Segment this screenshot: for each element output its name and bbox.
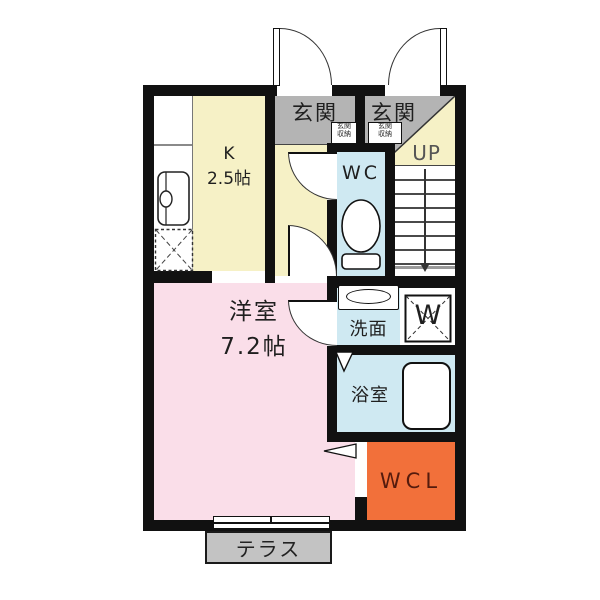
entrance-storage-right: 玄関 収納 bbox=[368, 122, 402, 144]
wall-closet-left-lower bbox=[355, 497, 367, 520]
entrance-storage-left-line2: 収納 bbox=[337, 130, 351, 138]
entrance-left-door-leaf bbox=[273, 28, 280, 86]
washbasin-counter bbox=[338, 285, 399, 310]
wc-label: WC bbox=[337, 162, 385, 184]
washer-box: W bbox=[404, 294, 452, 343]
washroom-label: 洗面 bbox=[337, 315, 400, 341]
wall-kitchen-bottom bbox=[154, 271, 212, 283]
entrance-right-opening bbox=[385, 85, 440, 96]
toilet-icon bbox=[339, 198, 383, 272]
kitchen-room: K 2.5帖 bbox=[193, 96, 265, 271]
kitchen-label-line2: 2.5帖 bbox=[207, 169, 251, 189]
counter-divider-line bbox=[154, 144, 193, 146]
kitchen-label-line1: K bbox=[223, 144, 234, 164]
closet-door-icon bbox=[322, 442, 358, 460]
entrance-right-door-arc bbox=[388, 28, 440, 85]
wall-outer-left bbox=[143, 85, 154, 531]
bathtub bbox=[402, 362, 451, 430]
wall-washroom-left-upper bbox=[327, 288, 337, 300]
bathroom-door-icon bbox=[334, 350, 356, 374]
western-room-label-line1: 洋室 bbox=[229, 299, 279, 325]
walk-in-closet-label: WCL bbox=[380, 469, 442, 493]
stair-direction-line bbox=[424, 169, 426, 265]
wall-wc-top bbox=[327, 143, 395, 152]
terrace-label: テラス bbox=[236, 533, 302, 562]
wall-bathroom-bottom bbox=[327, 432, 455, 442]
terrace: テラス bbox=[205, 531, 332, 564]
terrace-window-rail bbox=[214, 522, 329, 524]
wall-kitchen-hall bbox=[265, 96, 275, 283]
entrance-storage-left: 玄関 収納 bbox=[331, 122, 357, 144]
entrance-left-door-arc bbox=[280, 28, 332, 85]
stair-direction-arrow bbox=[420, 263, 430, 272]
kitchen-sink-icon bbox=[156, 170, 192, 228]
wall-wc-stairs bbox=[385, 152, 395, 276]
western-room-label-line2: 7.2帖 bbox=[220, 334, 288, 360]
washbasin-bowl bbox=[346, 289, 391, 304]
stairs-up-label: UP bbox=[412, 141, 441, 165]
refrigerator-space-icon bbox=[154, 228, 194, 272]
entrance-left-opening bbox=[277, 85, 332, 96]
washer-label: W bbox=[404, 300, 452, 331]
wall-outer-right bbox=[455, 85, 466, 531]
floor-plan: K 2.5帖 玄関 玄関 UP WC 洗面 浴室 洋室 7.2帖 bbox=[0, 0, 600, 600]
walk-in-closet: WCL bbox=[367, 442, 455, 520]
terrace-window-tick bbox=[270, 517, 272, 524]
kitchen-label: K 2.5帖 bbox=[193, 142, 265, 191]
entrance-storage-right-line2: 収納 bbox=[378, 130, 392, 138]
bathroom-label: 浴室 bbox=[337, 381, 403, 407]
entrance-right-door-leaf bbox=[440, 28, 447, 86]
terrace-window bbox=[213, 516, 330, 529]
